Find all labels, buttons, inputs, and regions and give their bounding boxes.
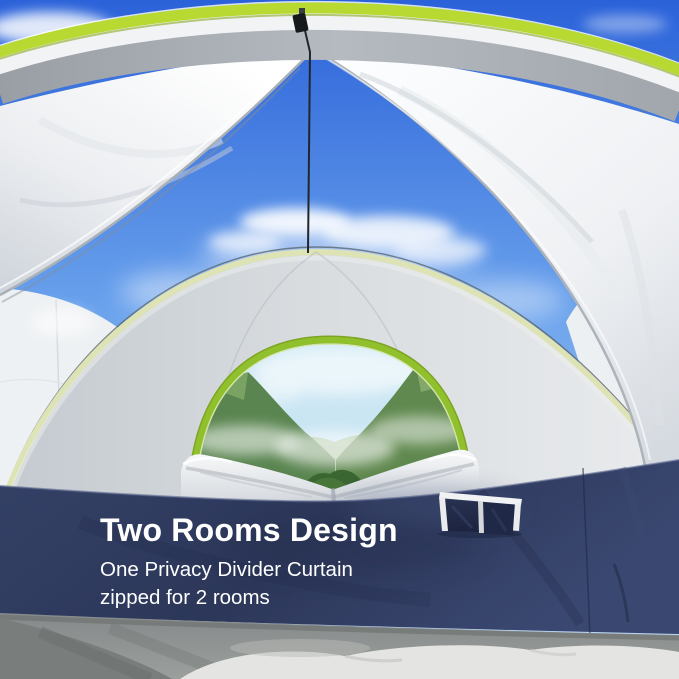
headline: Two Rooms Design	[100, 512, 398, 549]
subtitle-line-1: One Privacy Divider Curtain	[100, 556, 398, 584]
marketing-text-block: Two Rooms Design One Privacy Divider Cur…	[100, 512, 398, 612]
tent-product-image: Two Rooms Design One Privacy Divider Cur…	[0, 0, 679, 679]
subtitle-line-2: zipped for 2 rooms	[100, 584, 398, 612]
cloud	[583, 15, 667, 33]
pocket-divider	[478, 501, 484, 533]
subtitle: One Privacy Divider Curtain zipped for 2…	[100, 556, 398, 612]
